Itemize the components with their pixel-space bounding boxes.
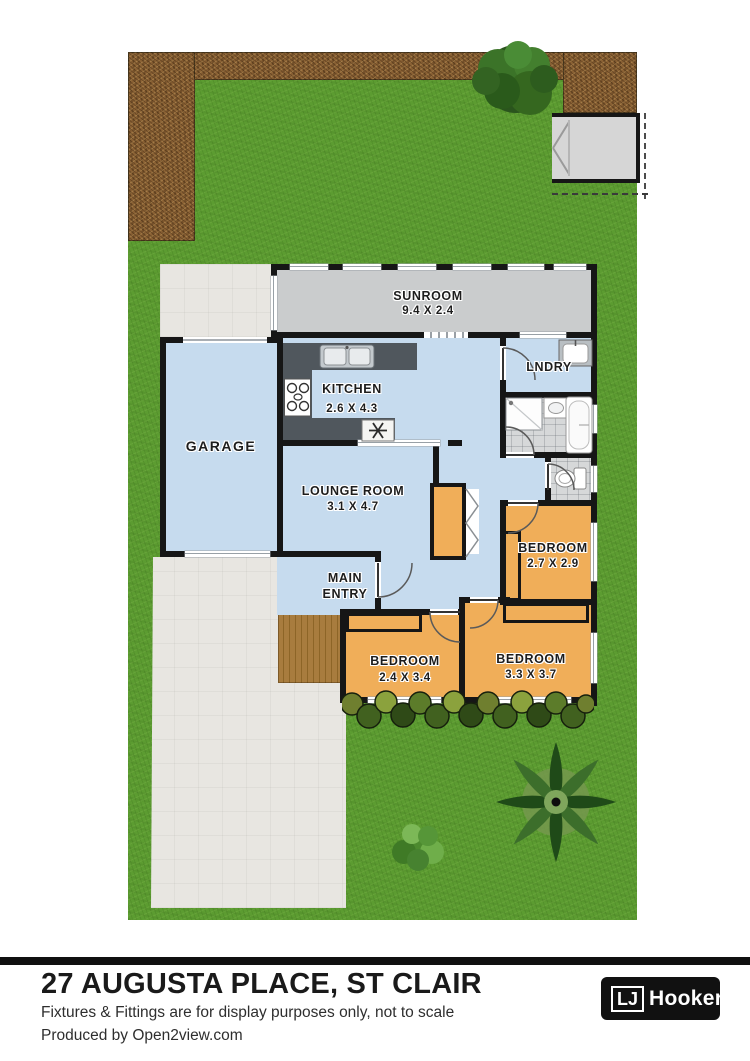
garden-bed-left (128, 52, 195, 241)
sliding-door-sunroom (424, 332, 468, 338)
bedroom-right-label: BEDROOM (518, 541, 587, 555)
hall-floor (500, 455, 551, 506)
kitchen-dims: 2.6 X 4.3 (326, 403, 377, 415)
wardrobe-bedroom-bottom (503, 603, 589, 623)
disclaimer-text: Fixtures & Fittings are for display purp… (41, 1004, 454, 1022)
window-laundry (520, 332, 566, 338)
bedroom-left-dims: 2.4 X 3.4 (379, 672, 430, 684)
window-kitchen-servery (358, 440, 440, 446)
page-title: 27 AUGUSTA PLACE, ST CLAIR (41, 968, 482, 1001)
lounge-dims: 3.1 X 4.7 (327, 501, 378, 513)
garden-bed-right (563, 52, 637, 113)
kitchen-label: KITCHEN (322, 382, 382, 396)
sunroom-dims: 9.4 X 2.4 (402, 305, 453, 317)
window (398, 264, 436, 270)
shed-gable-icon (552, 117, 636, 179)
bathroom-floor (500, 392, 597, 458)
window-bedroom-right (591, 523, 597, 581)
laundry-label: LNDRY (526, 360, 572, 374)
door-opening-wc (545, 462, 551, 488)
patio-front (160, 264, 276, 337)
garage-label: GARAGE (186, 438, 256, 454)
door-opening-laundry (500, 346, 506, 380)
footer-divider (0, 957, 750, 965)
window (554, 264, 586, 270)
door-opening-bedroom-right (508, 500, 538, 506)
credit-text: Produced by Open2view.com (41, 1027, 243, 1045)
wall (160, 337, 166, 557)
wall (500, 599, 597, 605)
boundary-dashed-horizontal (552, 193, 648, 195)
wall (433, 446, 439, 486)
wc-floor (545, 452, 597, 506)
window (343, 264, 381, 270)
door-opening-bathroom (506, 452, 534, 458)
window-wc (591, 466, 597, 492)
lj-hooker-logo: LJ Hooker (601, 977, 720, 1020)
bedroom-left-label: BEDROOM (370, 654, 439, 668)
closet-bifold-gap (466, 489, 479, 554)
door-opening-entry (375, 562, 381, 598)
bedroom-bottom-dims: 3.3 X 3.7 (505, 669, 556, 681)
wall (448, 440, 462, 446)
window (453, 264, 491, 270)
kitchen-counter-top (283, 343, 417, 370)
window-garage-rear (185, 551, 270, 557)
door-opening-bedroom-left (430, 609, 458, 615)
door-opening-bedroom-bottom (470, 597, 498, 603)
floorplan-page: SUNROOM 9.4 X 2.4 KITCHEN 2.6 X 4.3 LNDR… (0, 0, 750, 1061)
tree-icon (460, 33, 572, 125)
shrub-icon (384, 818, 452, 874)
logo-lj-mark: LJ (611, 986, 644, 1012)
lounge-label: LOUNGE ROOM (302, 484, 404, 498)
palm-tree-icon (486, 736, 626, 868)
wall (500, 392, 597, 398)
main-entry-label-1: MAIN (328, 571, 362, 585)
window (271, 276, 277, 330)
kitchen-counter-left (283, 370, 312, 420)
bedroom-right-dims: 2.7 X 2.9 (527, 558, 578, 570)
boundary-dashed-vertical (644, 113, 646, 199)
window-bedroom-bottom-side (591, 633, 597, 683)
bedroom-bottom-label: BEDROOM (496, 652, 565, 666)
wardrobe-bedroom-left (346, 613, 422, 632)
window (290, 264, 328, 270)
sunroom-label: SUNROOM (393, 289, 462, 303)
garage-door-opening (183, 337, 267, 343)
window-bathroom (591, 405, 597, 433)
hall-linen-closet (430, 483, 466, 560)
garden-hedge-icon (342, 688, 594, 738)
window (508, 264, 544, 270)
wall (500, 506, 506, 600)
logo-hooker-text: Hooker (649, 987, 723, 1011)
main-entry-label-2: ENTRY (323, 587, 368, 601)
